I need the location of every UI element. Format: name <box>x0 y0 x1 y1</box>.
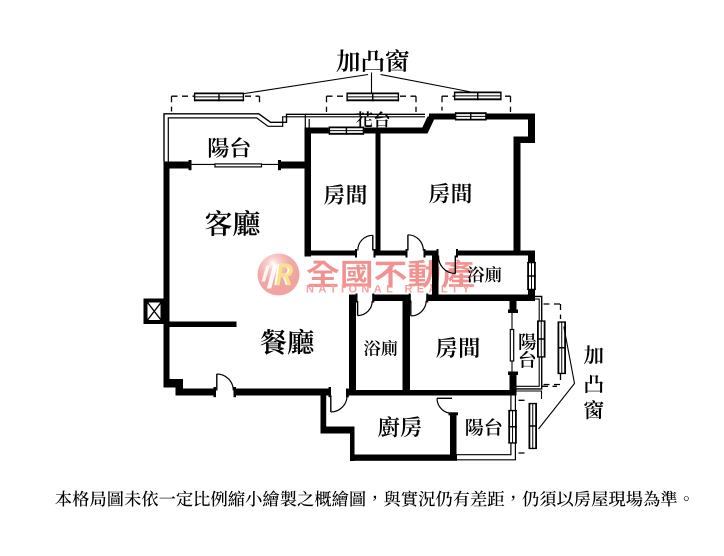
svg-text:NATIONAL REALTY: NATIONAL REALTY <box>306 283 474 295</box>
